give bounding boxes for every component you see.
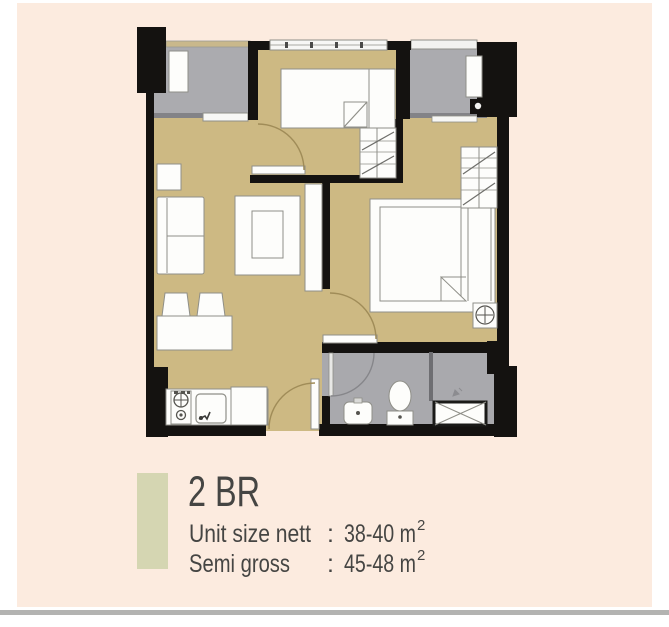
svg-text::: : (327, 550, 334, 578)
svg-text::: : (327, 520, 334, 548)
svg-text:38-40 m: 38-40 m (344, 520, 416, 548)
svg-text:Semi gross: Semi gross (189, 550, 290, 578)
svg-text:2: 2 (417, 517, 425, 534)
svg-text:2: 2 (417, 547, 425, 564)
svg-text:2 BR: 2 BR (188, 468, 260, 516)
svg-text:45-48 m: 45-48 m (344, 550, 416, 578)
svg-text:Unit size nett: Unit size nett (189, 520, 311, 548)
